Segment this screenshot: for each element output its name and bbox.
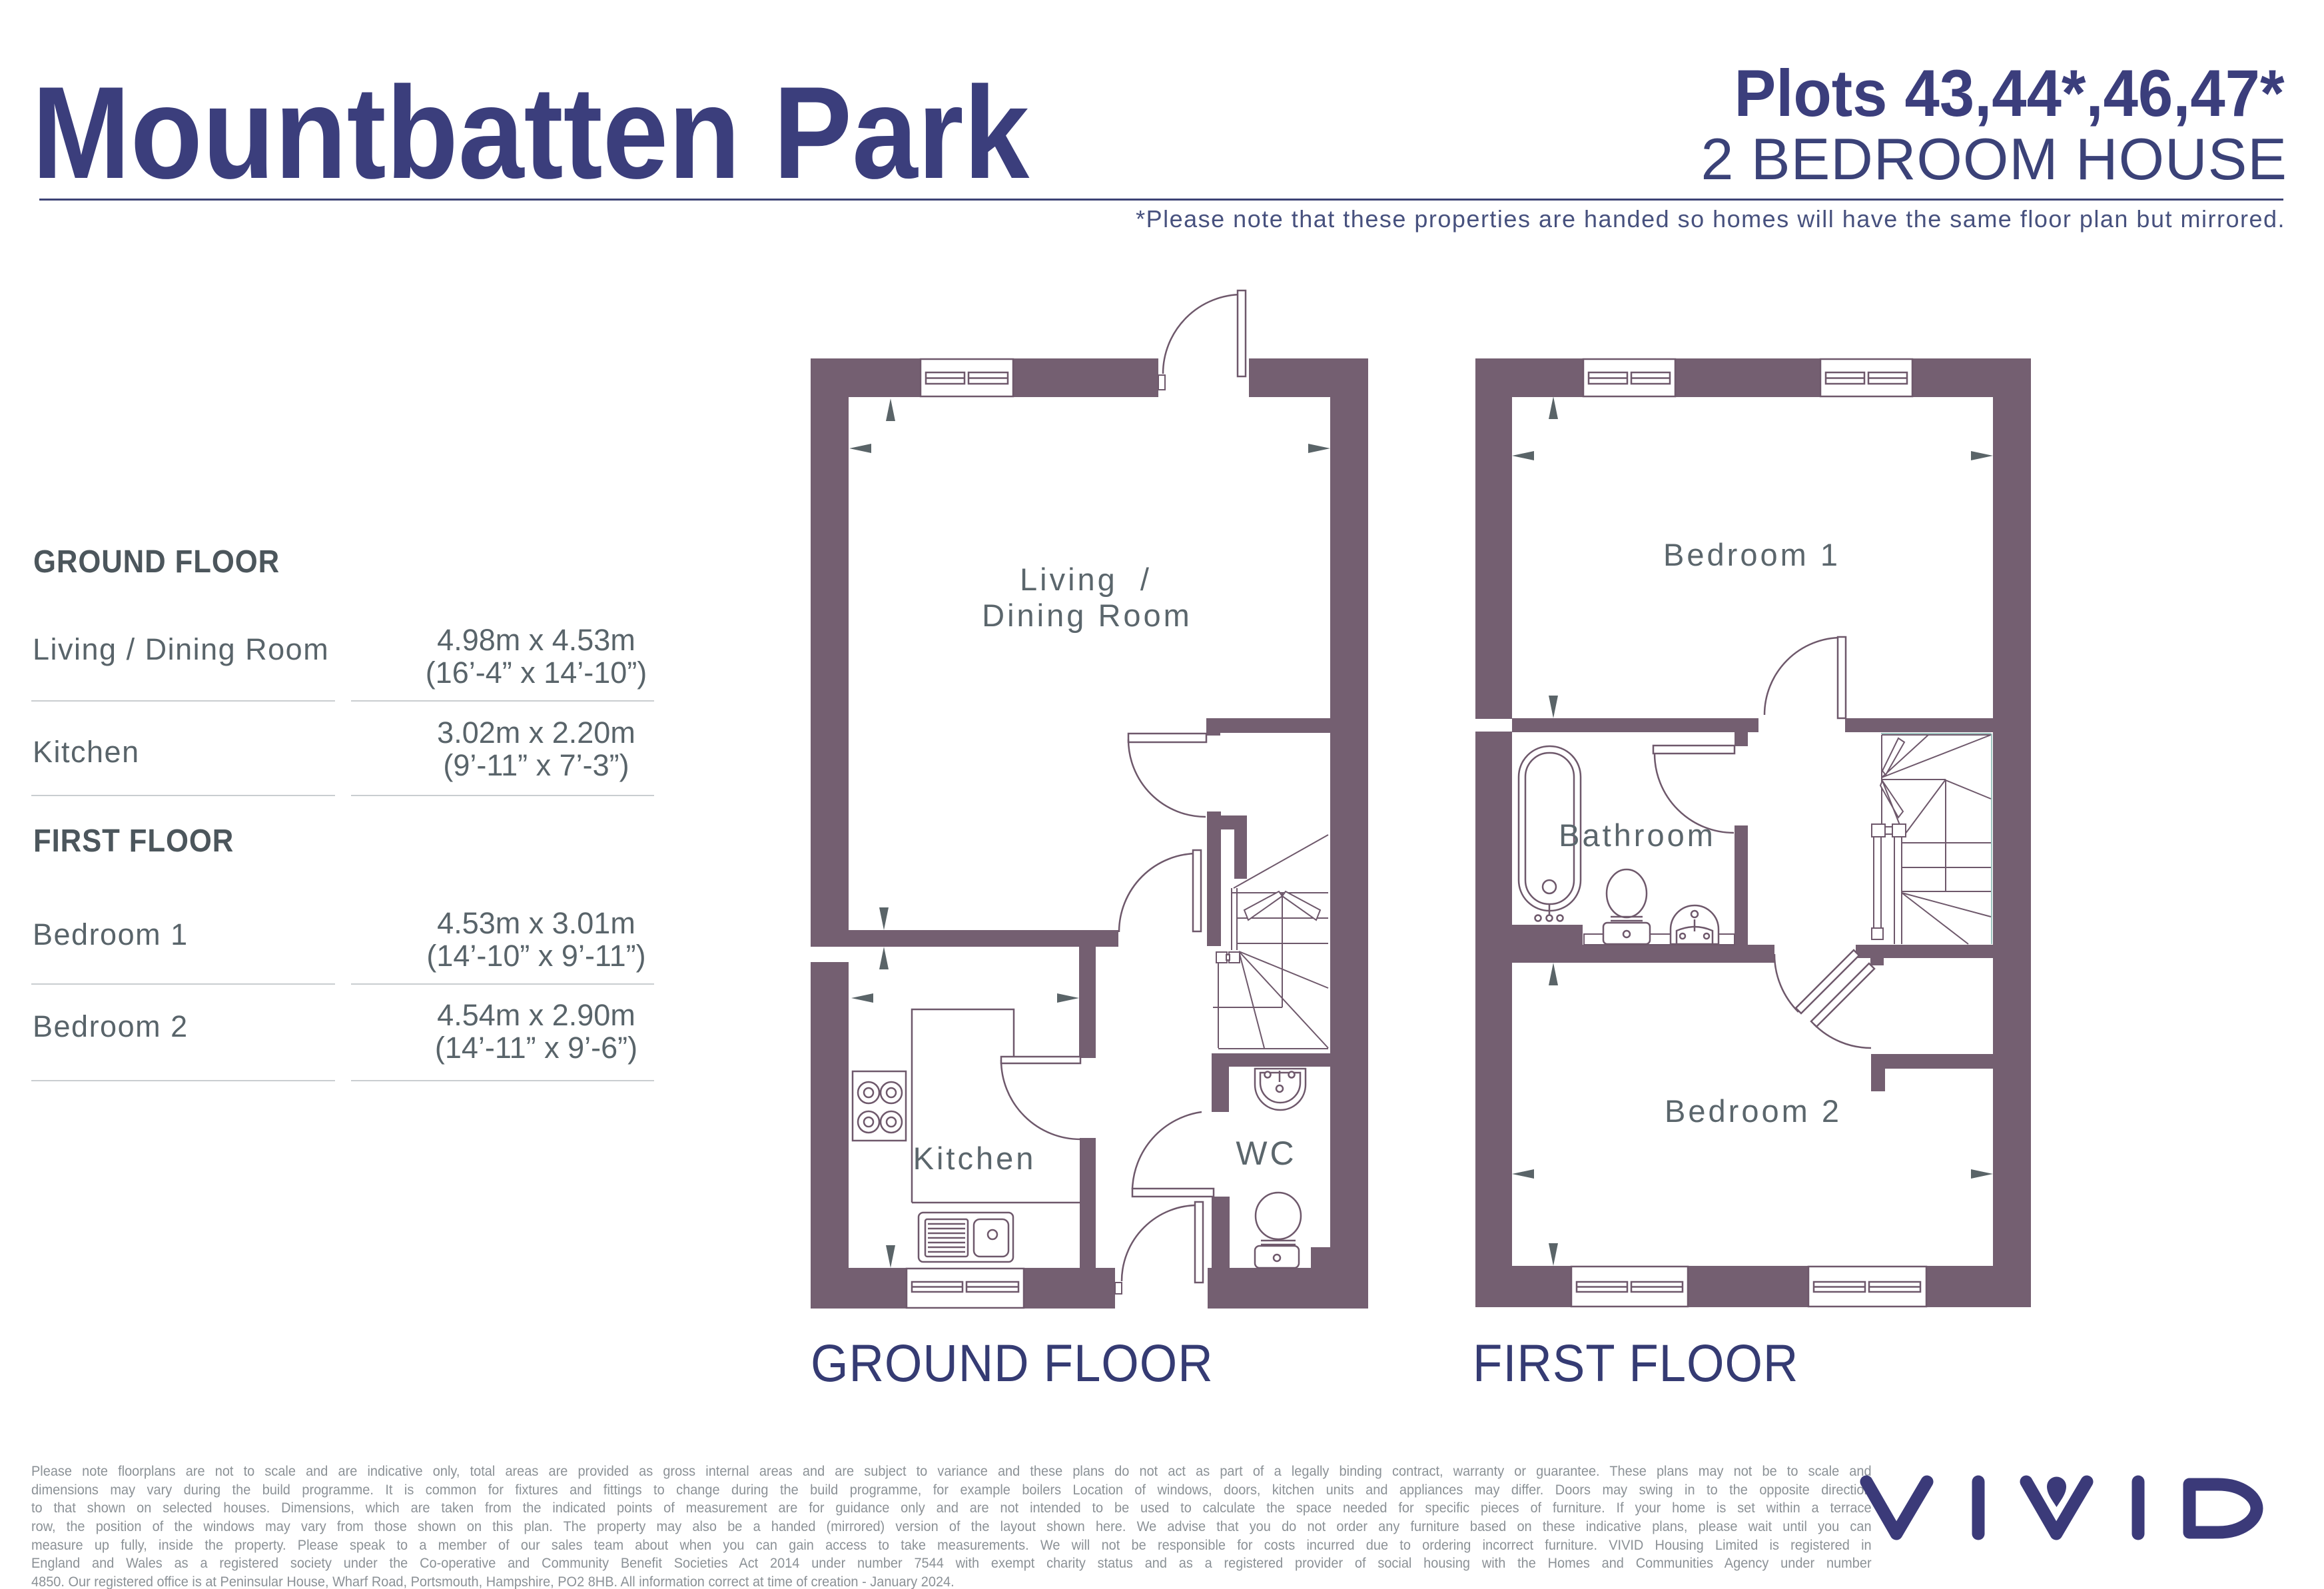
svg-text:WC: WC bbox=[1236, 1135, 1296, 1172]
svg-text:Bathroom: Bathroom bbox=[1559, 817, 1716, 853]
svg-text:Bedroom 2: Bedroom 2 bbox=[1665, 1093, 1842, 1129]
svg-text:Living /: Living / bbox=[1020, 562, 1152, 597]
svg-text:Kitchen: Kitchen bbox=[913, 1141, 1036, 1176]
svg-text:Bedroom 1: Bedroom 1 bbox=[1663, 537, 1840, 572]
svg-text:Dining Room: Dining Room bbox=[982, 598, 1192, 633]
